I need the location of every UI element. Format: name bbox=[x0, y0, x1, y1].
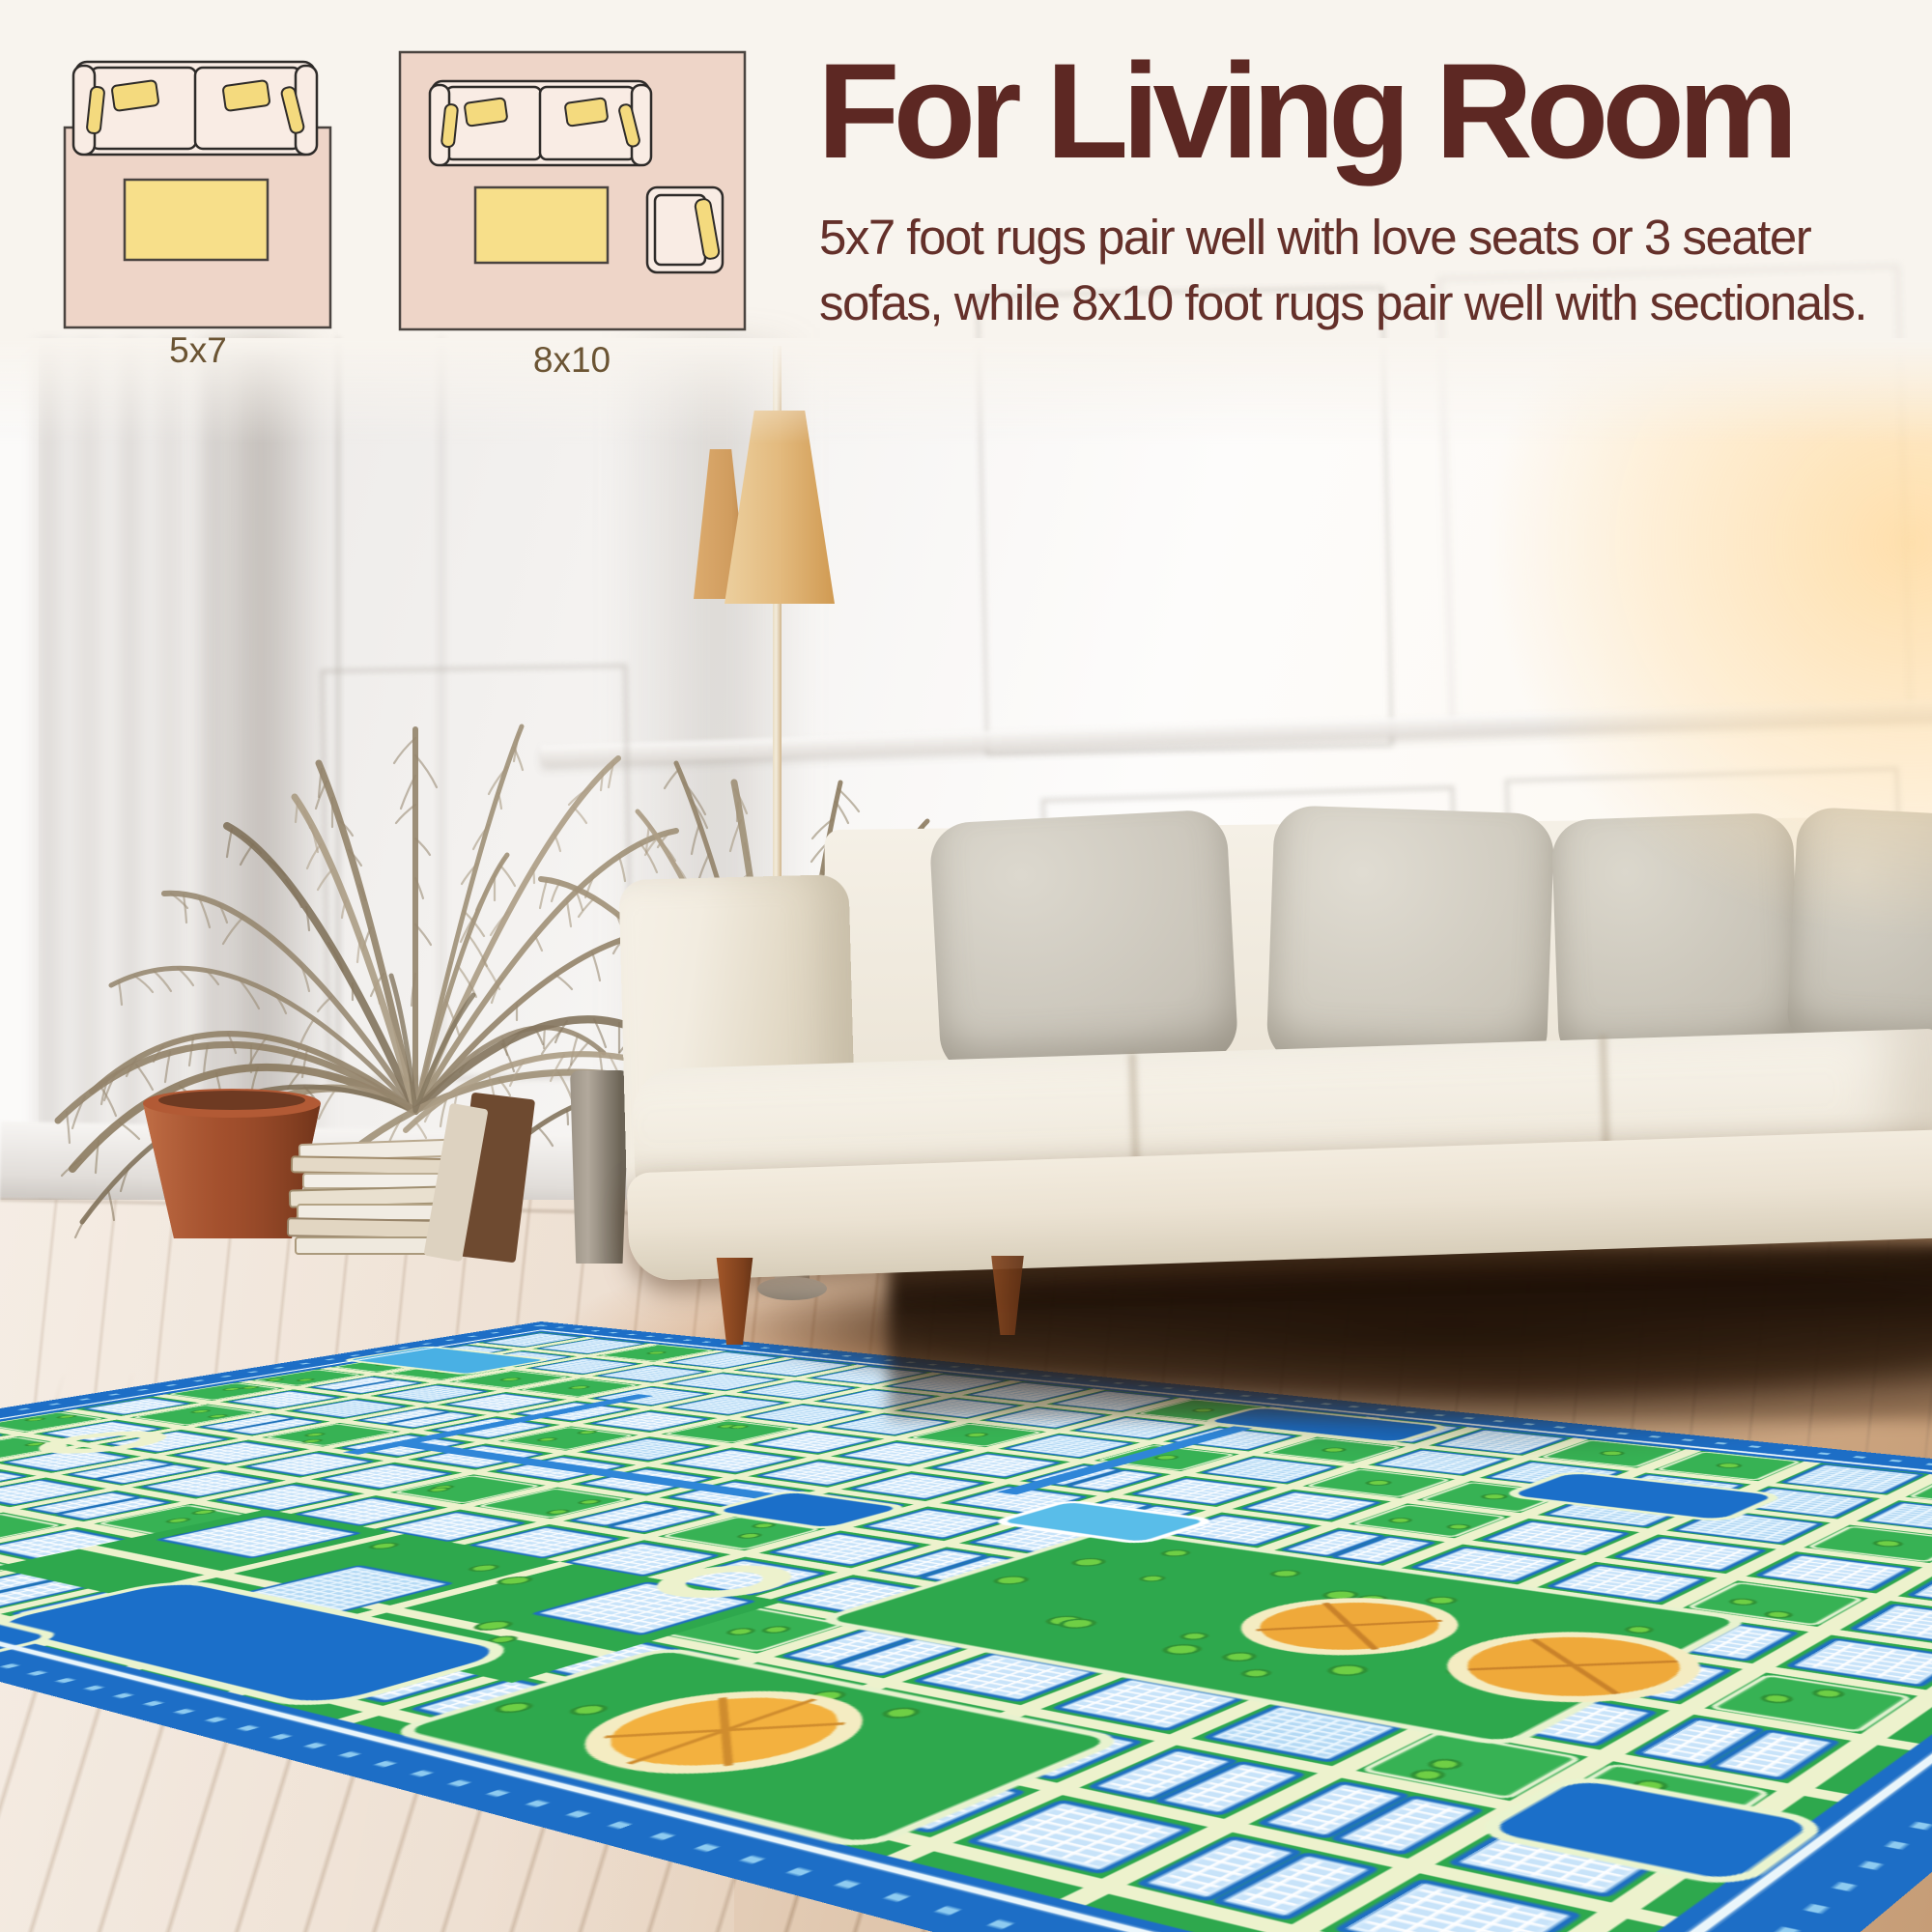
svg-text:5x7: 5x7 bbox=[169, 330, 227, 370]
svg-text:8x10: 8x10 bbox=[533, 340, 611, 380]
